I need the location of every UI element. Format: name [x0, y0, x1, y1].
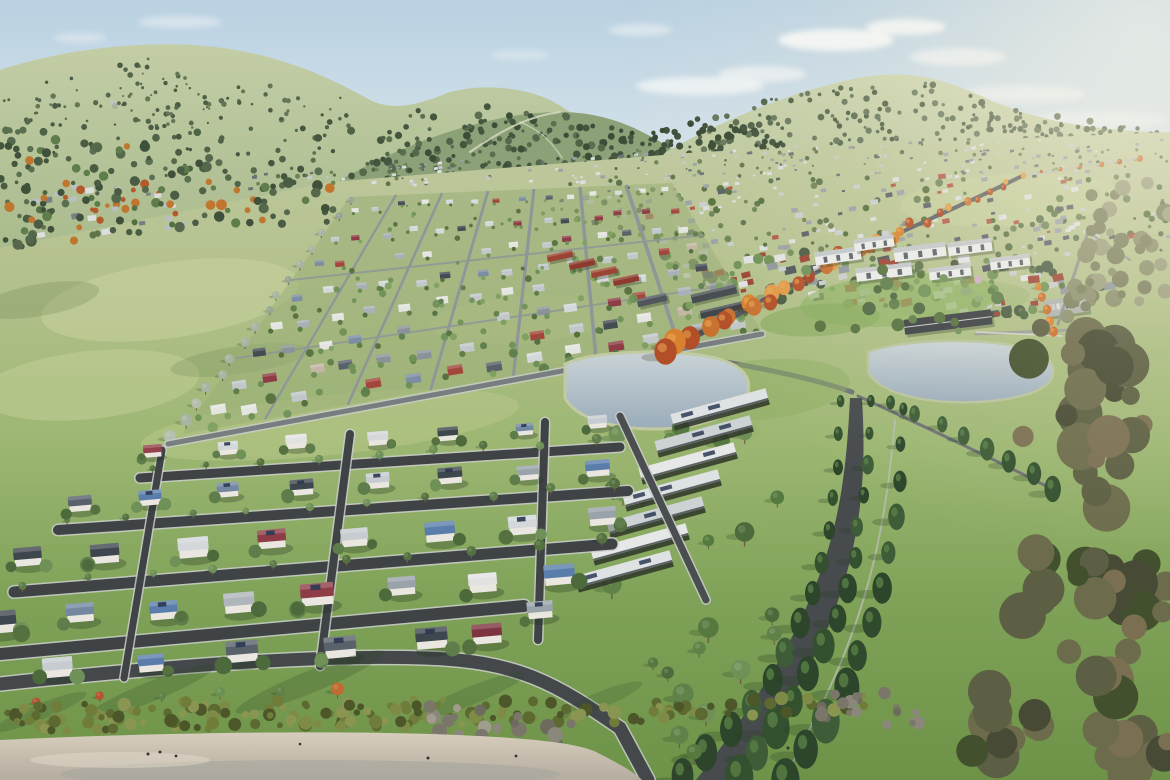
vegetation-dot [402, 705, 412, 715]
vegetation-dot [81, 124, 87, 130]
vegetation-dot [225, 208, 230, 213]
cloud [490, 50, 550, 60]
grid-tree [358, 240, 362, 244]
vegetation-dot [27, 146, 33, 152]
grid-tree [450, 333, 457, 340]
vegetation-dot [206, 717, 219, 730]
vegetation-dot [260, 183, 269, 192]
vegetation-dot [464, 128, 468, 132]
vegetation-dot [318, 146, 322, 150]
vegetation-dot [331, 149, 335, 153]
vegetation-dot [19, 703, 29, 713]
vegetation-dot [58, 189, 65, 196]
conifer-tree [881, 541, 895, 564]
round-tree [203, 462, 209, 468]
tree-highlight [593, 435, 597, 439]
round-tree [243, 508, 250, 515]
tree-highlight [151, 571, 154, 574]
vegetation-dot [15, 180, 19, 184]
tree-highlight [242, 339, 246, 343]
conifer-highlight [826, 524, 830, 531]
vegetation-dot [344, 700, 355, 711]
conifer-highlight [884, 544, 889, 552]
tree-highlight [244, 509, 247, 512]
vegetation-dot [98, 714, 104, 720]
vegetation-dot [524, 713, 534, 723]
tree-highlight [773, 493, 779, 499]
vegetation-dot [259, 217, 266, 224]
tree-highlight [537, 443, 540, 446]
conifer-tree [851, 517, 863, 537]
tree-highlight [734, 663, 742, 671]
vegetation-dot [421, 178, 424, 181]
conifer-tree [791, 608, 810, 639]
conifer-highlight [767, 712, 777, 728]
grid-tree [617, 215, 621, 219]
vegetation-dot [852, 692, 860, 700]
grid-tree [584, 220, 587, 223]
vegetation-dot [138, 65, 141, 68]
vegetation-dot [478, 119, 484, 125]
vegetation-dot [166, 111, 170, 115]
vegetation-dot [275, 148, 280, 153]
vegetation-dot [246, 219, 254, 227]
tree-highlight [701, 620, 709, 628]
vegetation-dot [568, 182, 572, 186]
vegetation-dot [339, 97, 341, 99]
tree-highlight [252, 323, 256, 327]
grid-tree [552, 240, 558, 246]
vegetation-dot [234, 187, 240, 193]
vegetation-dot [297, 166, 304, 173]
grid-tree [549, 247, 553, 251]
vegetation-dot [1068, 565, 1089, 586]
round-tree [215, 687, 225, 697]
grid-tree [628, 186, 630, 188]
tree-highlight [377, 452, 380, 455]
grid-tree [521, 266, 525, 270]
conifer-highlight [876, 577, 883, 588]
vegetation-dot [202, 95, 206, 99]
grid-tree [501, 319, 507, 325]
vegetation-dot [175, 149, 182, 156]
vegetation-dot [259, 203, 269, 213]
vegetation-dot [283, 177, 294, 188]
grid-tree [258, 381, 264, 387]
grid-tree [411, 215, 414, 218]
vegetation-dot [188, 131, 192, 135]
vegetation-dot [75, 102, 80, 107]
vegetation-dot [505, 137, 512, 144]
vegetation-dot [599, 703, 608, 712]
vegetation-dot [3, 99, 6, 102]
vegetation-dot [162, 78, 165, 81]
vegetation-dot [15, 129, 21, 135]
grid-tree [379, 211, 382, 214]
grid-tree [481, 276, 486, 281]
dot [175, 755, 178, 758]
grid-tree [565, 241, 569, 245]
tree-highlight [695, 643, 700, 648]
conifer-tree [872, 572, 891, 603]
grid-tree [316, 389, 323, 396]
tree-highlight [704, 536, 709, 541]
grid-tree [490, 370, 497, 377]
tree-highlight [316, 456, 319, 459]
conifer-highlight [853, 520, 858, 527]
distant-house [580, 176, 583, 178]
tree-highlight [33, 699, 36, 702]
grid-tree [459, 351, 465, 357]
grid-tree [594, 221, 598, 225]
grid-tree [388, 277, 393, 282]
vegetation-dot [609, 145, 614, 150]
vegetation-dot [35, 104, 40, 109]
grid-tree [480, 342, 487, 349]
round-tree [348, 197, 354, 203]
vegetation-dot [195, 159, 203, 167]
vegetation-dot [242, 711, 249, 718]
vegetation-dot [674, 702, 684, 712]
tree-highlight [689, 746, 695, 752]
vegetation-dot [490, 715, 496, 721]
round-tree [429, 445, 438, 454]
tree-highlight [310, 247, 313, 250]
vegetation-dot [576, 124, 583, 131]
grid-tree [427, 203, 430, 206]
vegetation-dot [125, 718, 137, 730]
grid-tree [434, 233, 438, 237]
conifer-tree [838, 574, 856, 604]
vegetation-dot [123, 67, 128, 72]
vegetation-dot [219, 116, 223, 120]
vegetation-dot [108, 168, 114, 174]
vegetation-dot [82, 196, 90, 204]
vegetation-dot [637, 717, 645, 725]
distant-house [437, 170, 442, 173]
tree-highlight [217, 689, 221, 693]
vegetation-dot [130, 176, 140, 186]
vegetation-dot [590, 124, 595, 129]
vegetation-dot [545, 697, 557, 709]
tree-highlight [673, 728, 680, 735]
solar-panels [266, 530, 275, 535]
vegetation-dot [268, 83, 273, 88]
round-tree [95, 691, 104, 700]
vegetation-dot [21, 227, 29, 235]
conifer-tree [813, 628, 835, 663]
vegetation-dot [25, 119, 30, 124]
vegetation-dot [300, 125, 306, 131]
round-tree [218, 370, 227, 379]
tree-highlight [159, 693, 162, 696]
distant-house [392, 173, 396, 176]
vegetation-dot [76, 214, 84, 222]
grid-tree [311, 372, 317, 378]
vegetation-dot [66, 156, 72, 162]
round-tree [150, 570, 157, 577]
vegetation-dot [614, 175, 618, 179]
vegetation-dot [882, 720, 891, 729]
vegetation-dot [344, 113, 349, 118]
vegetation-dot [532, 134, 539, 141]
tree-highlight [491, 493, 494, 496]
vegetation-dot [11, 161, 17, 167]
vegetation-dot [47, 226, 54, 233]
vegetation-dot [815, 708, 828, 721]
vegetation-dot [15, 152, 22, 159]
round-tree [765, 607, 780, 622]
grid-tree [469, 298, 475, 304]
vegetation-dot [147, 57, 150, 60]
round-tree [703, 535, 715, 547]
vegetation-dot [397, 149, 402, 154]
vegetation-dot [94, 201, 100, 207]
grid-tree [501, 275, 506, 280]
vegetation-dot [194, 724, 201, 731]
vegetation-dot [31, 201, 37, 207]
vegetation-dot [327, 119, 333, 125]
vegetation-dot [267, 712, 274, 719]
vegetation-dot [24, 183, 30, 189]
round-tree [375, 451, 383, 459]
vegetation-dot [55, 145, 60, 150]
grid-tree [512, 247, 516, 251]
round-tree [662, 667, 674, 679]
round-tree [466, 546, 476, 556]
round-tree [489, 492, 498, 501]
tree-highlight [422, 494, 425, 497]
vegetation-dot [150, 94, 152, 96]
round-tree [693, 642, 706, 655]
vegetation-dot [484, 162, 488, 166]
vegetation-dot [390, 704, 402, 716]
vegetation-dot [40, 128, 48, 136]
conifer-highlight [851, 550, 856, 558]
vegetation-dot [451, 154, 455, 158]
vegetation-dot [1, 183, 8, 190]
vegetation-dot [453, 704, 461, 712]
tree-highlight [210, 566, 213, 569]
tree-highlight [271, 561, 274, 564]
vegetation-dot [172, 211, 178, 217]
vegetation-dot [557, 711, 564, 718]
vegetation-dot [62, 200, 70, 208]
vegetation-dot [90, 164, 99, 173]
vegetation-dot [108, 723, 118, 733]
vegetation-dot [487, 160, 490, 163]
tree-highlight [598, 535, 602, 539]
vegetation-dot [460, 141, 468, 149]
vegetation-dot [82, 717, 94, 729]
vegetation-dot [381, 136, 385, 140]
tree-highlight [536, 541, 540, 545]
round-tree [250, 322, 259, 331]
vegetation-dot [114, 188, 122, 196]
conifer-tree [720, 711, 742, 747]
vegetation-dot [270, 213, 276, 219]
distant-house [575, 177, 577, 179]
vegetation-dot [387, 170, 391, 174]
conifer-highlight [676, 763, 684, 776]
grid-tree [469, 224, 473, 228]
grid-tree [224, 413, 231, 420]
vegetation-dot [517, 156, 521, 160]
autumn-tree [654, 338, 676, 364]
round-tree [158, 692, 166, 700]
grid-tree [578, 295, 584, 301]
vegetation-dot [263, 92, 268, 97]
vegetation-dot [427, 137, 432, 142]
round-tree [306, 503, 314, 511]
grid-tree [424, 286, 429, 291]
conifer-highlight [798, 735, 807, 749]
dot [147, 753, 150, 756]
conifer-highlight [801, 661, 809, 674]
vegetation-dot [956, 735, 988, 767]
vegetation-dot [478, 150, 482, 154]
vegetation-dot [254, 197, 262, 205]
vegetation-dot [169, 222, 175, 228]
vegetation-dot [81, 701, 87, 707]
vegetation-dot [290, 167, 294, 171]
vegetation-dot [106, 93, 111, 98]
vegetation-dot [251, 103, 254, 106]
grid-tree [279, 352, 285, 358]
vegetation-dot [70, 77, 74, 81]
vegetation-dot [568, 125, 574, 131]
vegetation-dot [575, 709, 586, 720]
vegetation-dot [421, 168, 424, 171]
vegetation-dot [17, 214, 22, 219]
vegetation-dot [50, 93, 55, 98]
vegetation-dot [566, 719, 575, 728]
vegetation-dot [321, 204, 330, 213]
vegetation-dot [119, 87, 121, 89]
grid-tree [598, 220, 602, 224]
vegetation-dot [95, 191, 99, 195]
vegetation-dot [89, 231, 96, 238]
vegetation-dot [385, 152, 389, 156]
vegetation-dot [246, 152, 250, 156]
vegetation-dot [312, 151, 316, 155]
solar-panels [146, 491, 153, 495]
grid-tree [534, 291, 539, 296]
vegetation-dot [214, 211, 225, 222]
vegetation-dot [250, 709, 259, 718]
vegetation-dot [24, 199, 29, 204]
round-tree [285, 276, 292, 283]
grid-tree [496, 294, 501, 299]
vegetation-dot [384, 159, 390, 165]
conifer-highlight [839, 673, 849, 687]
conifer-highlight [816, 633, 824, 646]
vegetation-dot [96, 217, 103, 224]
round-tree [191, 398, 201, 408]
vegetation-dot [62, 727, 70, 735]
grid-tree [357, 342, 363, 348]
vegetation-dot [176, 134, 182, 140]
distant-house [486, 176, 491, 179]
vegetation-dot [51, 135, 61, 145]
vegetation-dot [146, 119, 151, 124]
round-tree [257, 458, 265, 466]
vegetation-dot [404, 141, 410, 147]
vegetation-dot [203, 100, 208, 105]
tree-highlight [676, 686, 684, 694]
vegetation-dot [199, 187, 206, 194]
vegetation-dot [284, 209, 290, 215]
scene [0, 0, 1170, 780]
grid-tree [597, 256, 604, 263]
vegetation-dot [33, 701, 43, 711]
vegetation-dot [428, 127, 432, 131]
vegetation-dot [324, 219, 330, 225]
grid-tree [268, 328, 273, 333]
grid-tree [293, 313, 299, 319]
round-tree [331, 682, 344, 695]
distant-house [605, 158, 607, 160]
vegetation-dot [165, 174, 168, 177]
tree-highlight [151, 466, 153, 468]
vegetation-dot [205, 154, 213, 162]
tree-highlight [258, 459, 261, 462]
grid-tree [491, 226, 495, 230]
tree-highlight [191, 511, 194, 514]
solar-panels [334, 637, 344, 643]
vegetation-dot [268, 160, 274, 166]
vegetation-dot [42, 190, 47, 195]
vegetation-dot [140, 141, 150, 151]
vegetation-dot [141, 86, 144, 89]
grid-tree [334, 286, 340, 292]
grid-tree [544, 313, 550, 319]
vegetation-dot [504, 120, 508, 124]
vegetation-dot [430, 113, 437, 120]
grid-tree [378, 362, 384, 368]
vegetation-dot [427, 714, 437, 724]
solar-panels [236, 642, 246, 648]
grid-tree [445, 226, 449, 230]
grid-tree [553, 222, 557, 226]
vegetation-dot [268, 108, 273, 113]
conifer-tree [862, 607, 881, 638]
grid-tree [417, 202, 421, 206]
vegetation-dot [414, 708, 422, 716]
round-tree [592, 434, 602, 444]
vegetation-dot [375, 168, 379, 172]
vegetation-dot [129, 93, 132, 96]
vegetation-dot [172, 135, 177, 140]
ground-patch [30, 752, 210, 768]
grid-tree [440, 278, 445, 283]
tree-highlight [333, 684, 338, 689]
grid-tree [449, 203, 452, 206]
round-tree [479, 441, 487, 449]
solar-panels [445, 468, 453, 473]
vegetation-dot [658, 712, 670, 724]
vegetation-dot [140, 83, 142, 85]
vegetation-dot [583, 143, 590, 150]
vegetation-dot [446, 138, 453, 145]
conifer-tree [888, 504, 905, 531]
vegetation-dot [1076, 656, 1117, 697]
vegetation-dot [912, 709, 920, 717]
vegetation-dot [185, 83, 187, 85]
conifer-highlight [730, 761, 741, 777]
vegetation-dot [336, 720, 346, 730]
vegetation-dot [363, 707, 371, 715]
